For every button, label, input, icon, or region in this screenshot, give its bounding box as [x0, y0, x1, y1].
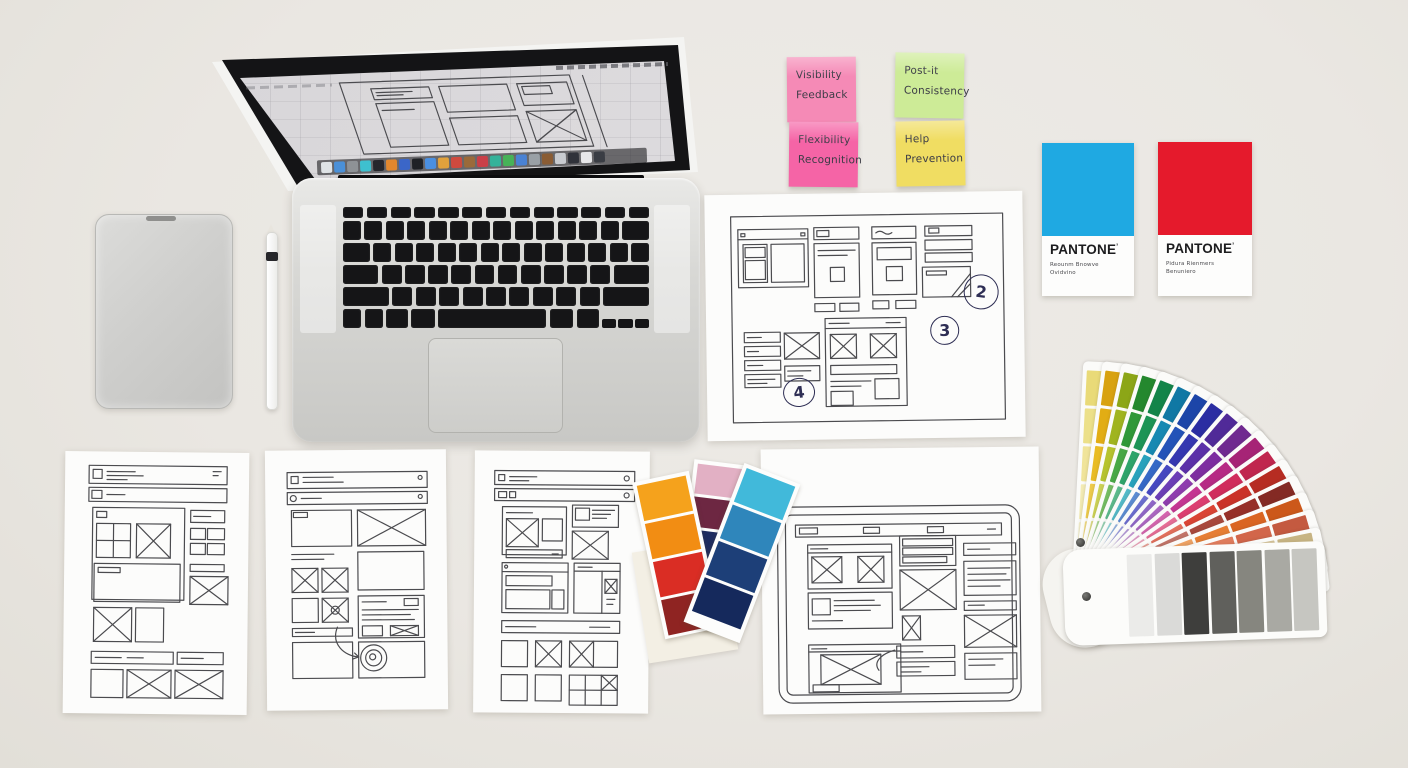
keyboard-key — [556, 287, 576, 306]
dock-app-icon — [581, 152, 592, 163]
fan-color-chip — [1291, 548, 1319, 631]
dock-app-icon — [347, 161, 358, 172]
keyboard-key — [405, 265, 425, 284]
keyboard-key — [579, 221, 597, 240]
keyboard-key — [590, 265, 610, 284]
keyboard-key — [631, 243, 649, 262]
keyboard-key — [439, 287, 459, 306]
keyboard-key — [493, 221, 511, 240]
keyboard-key — [558, 221, 576, 240]
trademark-mark: ’ — [1232, 243, 1234, 250]
annotation-number: 4 — [792, 382, 805, 402]
dock-app-icon — [425, 158, 436, 169]
wireframe-sketch — [63, 451, 250, 715]
keyboard-key — [498, 265, 518, 284]
wireframe-sheet-3 — [473, 450, 650, 713]
dock-app-icon — [568, 153, 579, 164]
keyboard-key — [515, 221, 533, 240]
keyboard-row — [343, 207, 649, 218]
keyboard-key — [472, 221, 490, 240]
keyboard-key — [343, 309, 361, 328]
keyboard-row — [343, 309, 649, 328]
dock-app-icon — [373, 160, 384, 171]
annotation-number: 3 — [939, 321, 950, 340]
keyboard-key — [502, 243, 520, 262]
keyboard-key — [610, 243, 628, 262]
wireframe-sheet-top: 2 3 4 — [704, 191, 1025, 441]
laptop-trackpad — [428, 338, 563, 433]
keyboard-key — [577, 309, 599, 328]
keyboard-key — [509, 287, 529, 306]
fan-color-chip — [1209, 551, 1237, 634]
pantone-caption: Reounm Bnowve — [1050, 262, 1099, 268]
keyboard-key — [438, 309, 546, 328]
dock-app-icon — [360, 161, 371, 172]
pantone-color-block — [1158, 142, 1252, 235]
fan-color-chip — [1154, 553, 1182, 636]
sticky-line: Help — [905, 129, 965, 150]
keyboard-key — [614, 265, 649, 284]
sticky-note-flexibility-recognition: Flexibility Recognition — [789, 122, 859, 188]
arrow-keys-cluster — [602, 309, 649, 328]
keyboard-key — [416, 287, 436, 306]
screen-menubar — [556, 62, 668, 70]
swatch-color-chip — [637, 475, 693, 521]
keyboard-key — [603, 287, 649, 306]
keyboard-key — [463, 287, 483, 306]
keyboard-key — [451, 265, 471, 284]
keyboard-key — [373, 243, 391, 262]
keyboard-key — [550, 309, 573, 328]
dock-app-icon — [321, 162, 332, 173]
keyboard-key — [416, 243, 434, 262]
fan-color-chip — [1264, 549, 1292, 632]
keyboard-key — [343, 265, 378, 284]
keyboard-key — [459, 243, 477, 262]
keyboard-key — [524, 243, 542, 262]
sticky-line: Recognition — [798, 151, 858, 172]
keyboard-key — [367, 207, 387, 218]
screen-menubar-left — [246, 84, 332, 90]
keyboard-key — [462, 207, 482, 218]
dock-app-icon — [542, 154, 553, 165]
fan-rivet-bottom — [1082, 592, 1091, 601]
sticky-note-help-prevention: Help Prevention — [895, 120, 965, 186]
keyboard-key — [407, 221, 425, 240]
keyboard-key — [428, 265, 448, 284]
keyboard-key — [429, 221, 447, 240]
sticky-line: Feedback — [796, 86, 856, 106]
wireframe-sketch — [761, 447, 1042, 715]
keyboard-key — [544, 265, 564, 284]
wireframe-sheet-2 — [265, 449, 448, 711]
fan-front-grayscale-strip — [1062, 541, 1327, 646]
keyboard-key — [386, 309, 408, 328]
pantone-caption: Pidura Rienmers — [1166, 261, 1214, 267]
keyboard-row — [343, 287, 649, 306]
keyboard-key — [475, 265, 495, 284]
swatch-color-chip — [645, 514, 701, 560]
keyboard-key — [392, 287, 412, 306]
fan-color-chip — [1236, 550, 1264, 633]
keyboard-key — [411, 309, 434, 328]
keyboard-row — [343, 243, 649, 262]
keyboard-key — [386, 221, 404, 240]
tablet — [95, 214, 233, 409]
dock-app-icon — [438, 158, 449, 169]
keyboard-key — [364, 221, 382, 240]
wireframe-sketch — [704, 191, 1025, 441]
sticky-line: Prevention — [905, 149, 965, 170]
keyboard-key — [438, 207, 458, 218]
pantone-caption: Ovidvino — [1050, 270, 1076, 276]
tablet-camera-slot — [146, 216, 176, 221]
keyboard-key — [567, 265, 587, 284]
pantone-color-block — [1042, 143, 1134, 236]
keyboard-key — [343, 243, 370, 262]
dock-app-icon — [399, 159, 410, 170]
dock-app-icon — [594, 152, 605, 163]
keyboard-key — [622, 221, 649, 240]
keyboard-key — [588, 243, 606, 262]
sticky-note-visibility-feedback: Visibility Feedback — [787, 57, 857, 123]
keyboard-key — [545, 243, 563, 262]
fan-rivet-top — [1076, 538, 1085, 547]
dock-app-icon — [477, 156, 488, 167]
dock-app-icon — [555, 153, 566, 164]
keyboard-key — [343, 207, 363, 218]
keyboard-key — [343, 287, 389, 306]
arrow-key — [618, 319, 632, 328]
arrow-key — [602, 319, 616, 328]
sticky-line: Flexibility — [798, 131, 858, 152]
keyboard-key — [486, 207, 506, 218]
pantone-brand: PANTONE’ — [1050, 242, 1118, 257]
keyboard-key — [581, 207, 601, 218]
fan-color-chip — [1182, 552, 1210, 635]
dock-app-icon — [516, 155, 527, 166]
keyboard-key — [521, 265, 541, 284]
keyboard-row — [343, 221, 649, 240]
keyboard-key — [391, 207, 411, 218]
keyboard-key — [605, 207, 625, 218]
laptop-keyboard — [343, 207, 649, 334]
keyboard-key — [343, 221, 361, 240]
arrow-key — [635, 319, 649, 328]
dock-app-icon — [529, 154, 540, 165]
annotation-number: 2 — [974, 282, 987, 302]
pantone-card-red: PANTONE’ Pidura Rienmers Benuniero — [1158, 142, 1252, 296]
sticky-line: Post-it — [904, 62, 964, 83]
keyboard-key — [601, 221, 619, 240]
stylus-band — [266, 252, 278, 261]
trademark-mark: ’ — [1116, 244, 1118, 251]
keyboard-key — [395, 243, 413, 262]
keyboard-key — [510, 207, 530, 218]
speaker-grille-right — [654, 205, 690, 333]
pantone-caption: Benuniero — [1166, 269, 1196, 275]
dock-app-icon — [451, 157, 462, 168]
fan-color-chip — [1127, 554, 1155, 637]
dock-app-icon — [412, 159, 423, 170]
sticky-line: Visibility — [796, 66, 856, 86]
keyboard-key — [382, 265, 402, 284]
keyboard-row — [343, 265, 649, 284]
keyboard-key — [557, 207, 577, 218]
desk-surface: 2 3 4 — [0, 0, 1408, 768]
dock-app-icon — [503, 155, 514, 166]
wireframe-sheet-1 — [63, 451, 250, 715]
keyboard-key — [414, 207, 434, 218]
sticky-note-postit-consistency: Post-it Consistency — [894, 52, 964, 118]
keyboard-key — [481, 243, 499, 262]
wireframe-sketch — [473, 450, 650, 713]
keyboard-key — [629, 207, 649, 218]
keyboard-key — [567, 243, 585, 262]
pantone-card-blue: PANTONE’ Reounm Bnowve Ovidvino — [1042, 143, 1134, 296]
keyboard-key — [450, 221, 468, 240]
keyboard-key — [533, 287, 553, 306]
dock-app-icon — [464, 157, 475, 168]
pantone-brand: PANTONE’ — [1166, 241, 1234, 256]
keyboard-key — [438, 243, 456, 262]
keyboard-key — [580, 287, 600, 306]
keyboard-key — [365, 309, 383, 328]
dock-app-icon — [490, 156, 501, 167]
speaker-grille-left — [300, 205, 336, 333]
sticky-line: Consistency — [904, 81, 964, 102]
wireframe-sheet-4 — [761, 447, 1042, 715]
dock-app-icon — [386, 160, 397, 171]
keyboard-key — [534, 207, 554, 218]
keyboard-key — [536, 221, 554, 240]
dock-app-icon — [334, 162, 345, 173]
screen-wireframe-drawing — [338, 73, 616, 157]
keyboard-key — [486, 287, 506, 306]
wireframe-sketch — [265, 449, 448, 711]
